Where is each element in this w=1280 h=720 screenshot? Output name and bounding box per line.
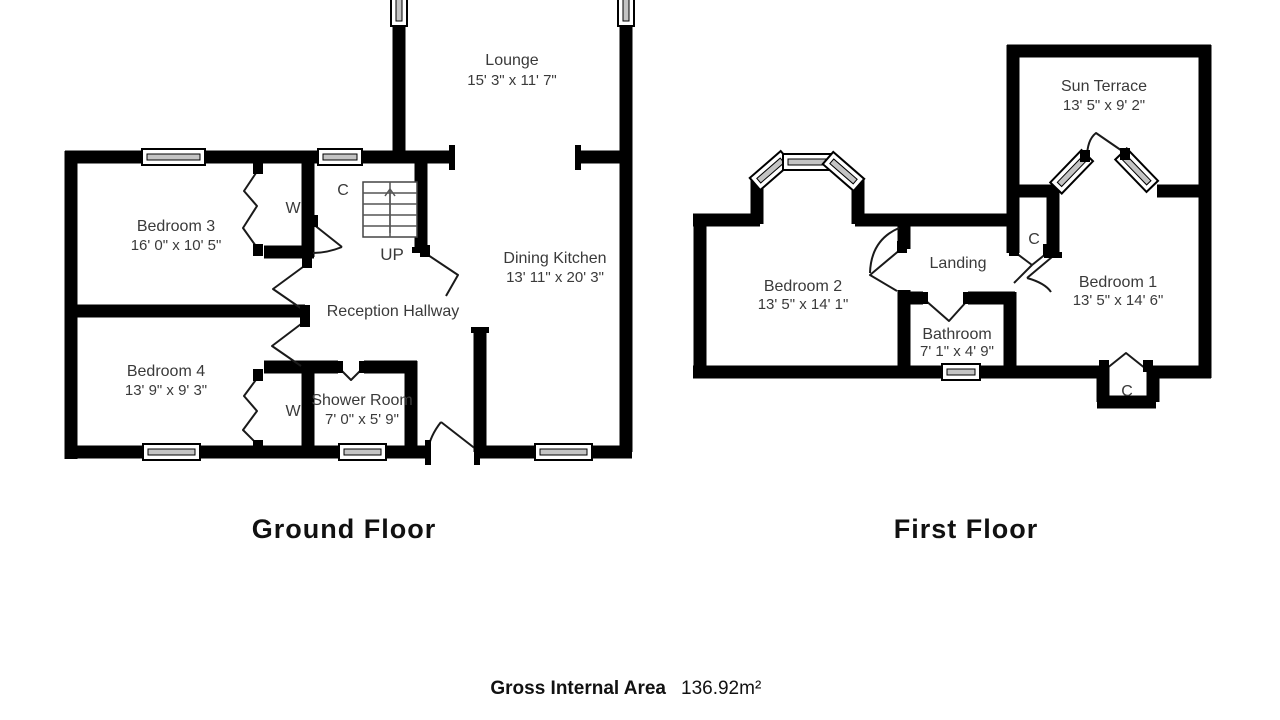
bedroom2-dims: 13' 5" x 14' 1": [758, 296, 849, 313]
gross-internal-area: Gross Internal Area 136.92m²: [490, 678, 761, 699]
bedroom2-door: [870, 228, 901, 291]
gross-internal-area-value: 136.92m²: [681, 678, 761, 699]
wardrobe-marker-bedroom4: W: [285, 403, 301, 420]
bedroom3-dims: 16' 0" x 10' 5": [131, 237, 222, 254]
sun-terrace-label: Sun Terrace: [1061, 78, 1147, 95]
cupboard-marker-landing: C: [1028, 231, 1040, 248]
window: [942, 364, 980, 380]
window: [142, 149, 205, 165]
shower-room-label: Shower Room: [311, 392, 412, 409]
bedroom1-label: Bedroom 1: [1079, 274, 1157, 291]
bedroom4-label: Bedroom 4: [127, 363, 205, 380]
bedroom3-label: Bedroom 3: [137, 218, 215, 235]
cupboard-marker-bedroom1: C: [1121, 383, 1133, 400]
window: [823, 152, 864, 191]
stairs-up-label: UP: [380, 245, 404, 264]
bedroom1-dims: 13' 5" x 14' 6": [1073, 292, 1164, 309]
cupboard-marker: C: [337, 182, 349, 199]
bedroom4-dims: 13' 9" x 9' 3": [125, 382, 207, 399]
wardrobe-bifold-bedroom3: [243, 170, 258, 249]
first-floor-title: First Floor: [894, 514, 1039, 544]
floorplan-drawing: Lounge 15' 3" x 11' 7" Bedroom 3 16' 0" …: [0, 0, 1280, 720]
lounge-label: Lounge: [485, 52, 538, 69]
first-floor-plan: Sun Terrace 13' 5" x 9' 2" Bedroom 2 13'…: [693, 45, 1211, 402]
dining-kitchen-door: [425, 253, 458, 296]
dining-kitchen-label: Dining Kitchen: [503, 250, 606, 267]
bedroom4-door: [272, 321, 305, 366]
window: [618, 0, 634, 26]
shower-room-dims: 7' 0" x 5' 9": [325, 411, 399, 428]
wardrobe-bifold-bedroom4: [243, 377, 258, 445]
sun-terrace-dims: 13' 5" x 9' 2": [1063, 97, 1145, 114]
bedroom3-door: [273, 264, 307, 309]
reception-hallway-label: Reception Hallway: [327, 303, 460, 320]
bathroom-dims: 7' 1" x 4' 9": [920, 343, 994, 360]
bedroom1-cupboard-door: [1106, 353, 1146, 369]
floorplan-page: Lounge 15' 3" x 11' 7" Bedroom 3 16' 0" …: [0, 0, 1280, 720]
staircase: [363, 182, 417, 237]
cupboard-door: [313, 224, 342, 253]
dining-kitchen-dims: 13' 11" x 20' 3": [506, 269, 604, 286]
gross-internal-area-label: Gross Internal Area: [490, 678, 666, 699]
window: [143, 444, 200, 460]
bedroom2-label: Bedroom 2: [764, 278, 842, 295]
bathroom-door: [925, 300, 967, 321]
bedroom1-door: [1027, 257, 1052, 292]
wardrobe-marker-bedroom3: W: [285, 200, 301, 217]
lounge-dims: 15' 3" x 11' 7": [467, 72, 557, 89]
window: [391, 0, 407, 26]
ground-floor-plan: Lounge 15' 3" x 11' 7" Bedroom 3 16' 0" …: [65, 0, 634, 465]
front-door: [428, 422, 477, 450]
window: [535, 444, 592, 460]
landing-label: Landing: [930, 255, 987, 272]
window: [339, 444, 386, 460]
ground-floor-title: Ground Floor: [252, 514, 436, 544]
window: [318, 149, 362, 165]
bathroom-label: Bathroom: [922, 326, 991, 343]
